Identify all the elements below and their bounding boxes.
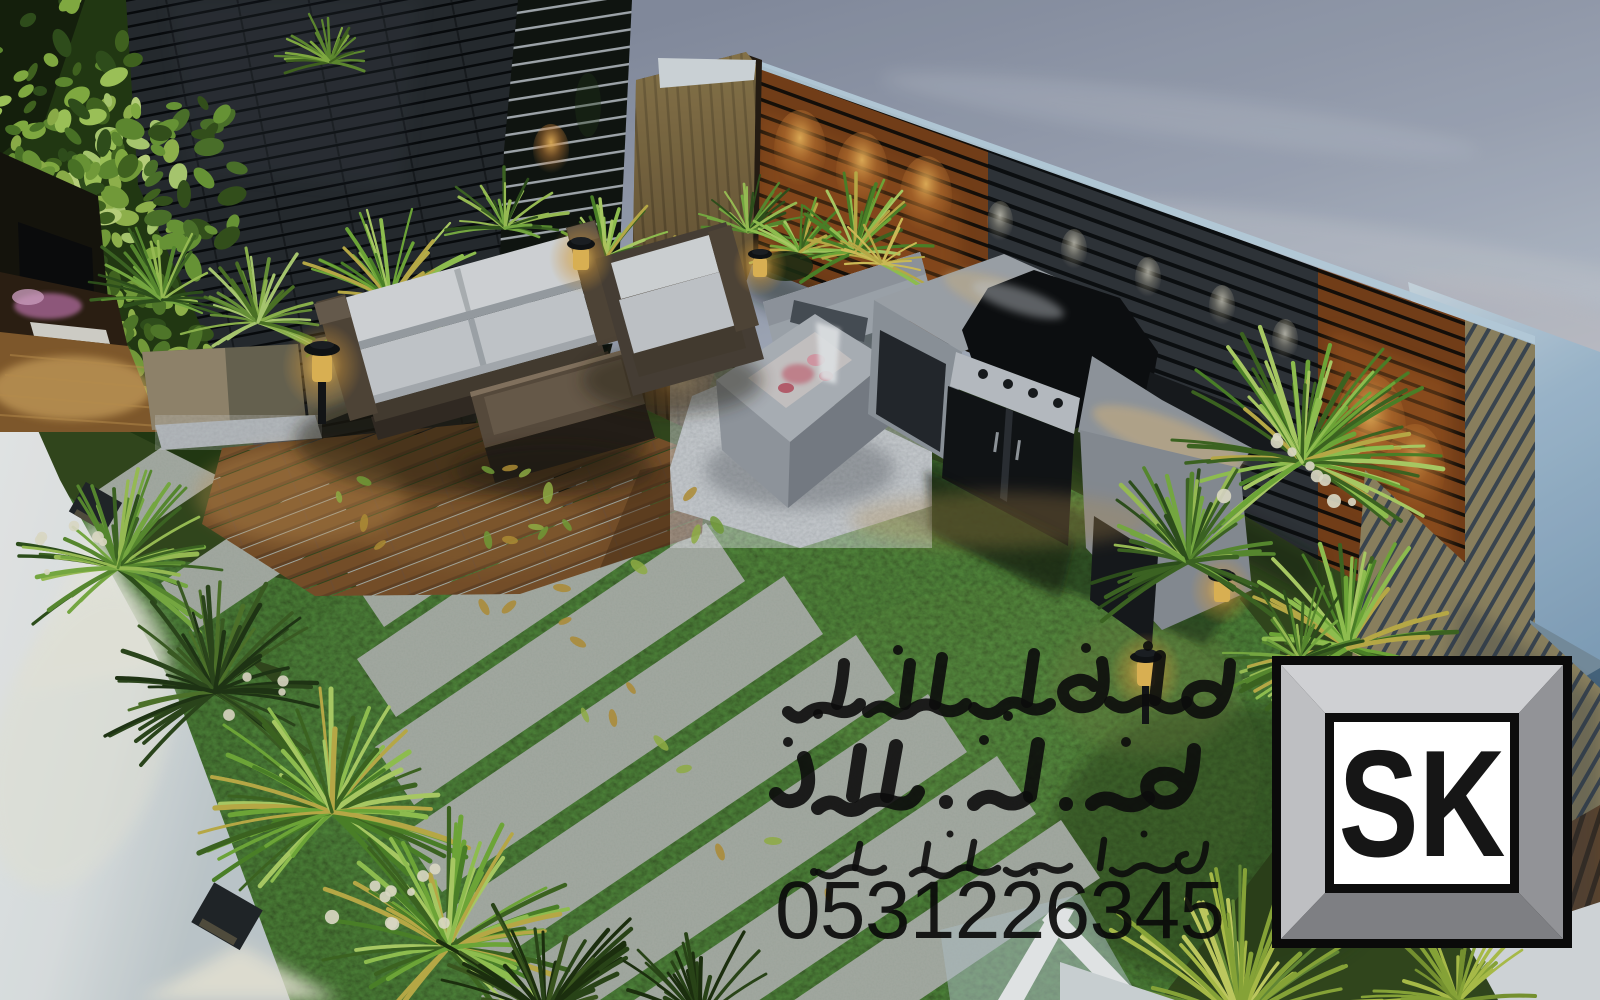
svg-text:0531226345: 0531226345 xyxy=(775,865,1225,956)
svg-text:SK: SK xyxy=(1339,720,1506,890)
